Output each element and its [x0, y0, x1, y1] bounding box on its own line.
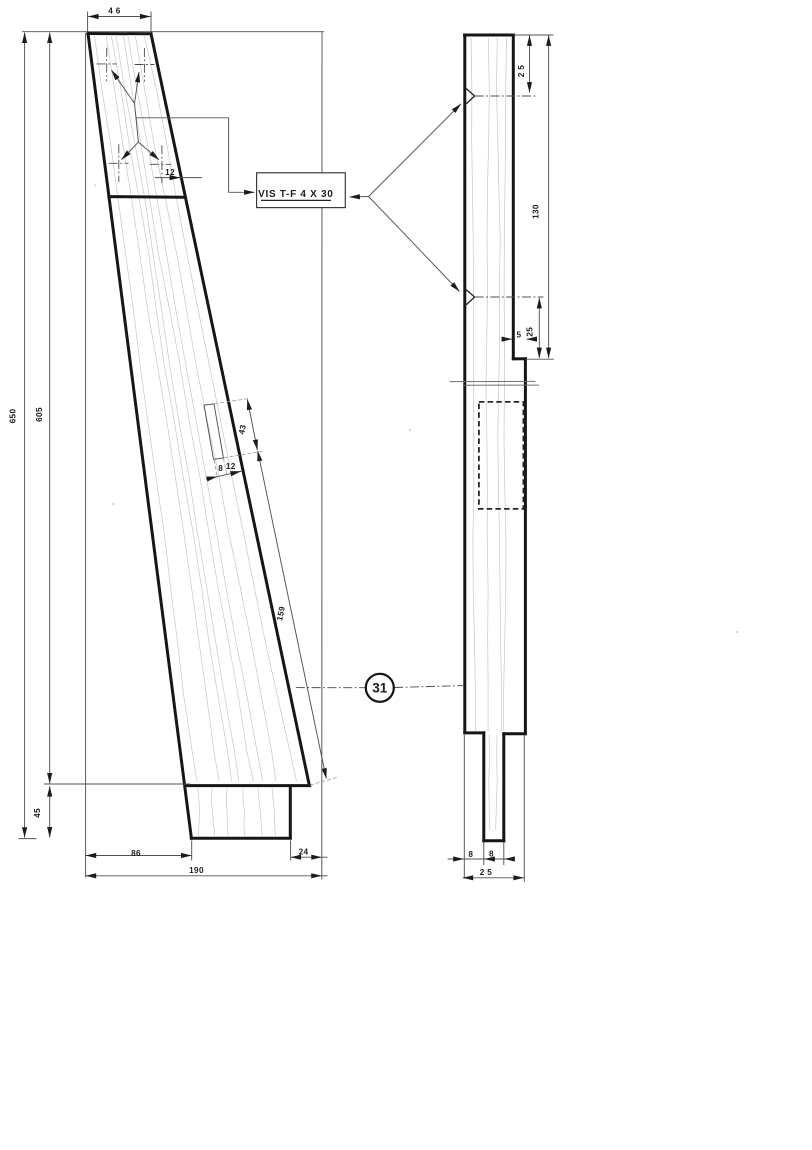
svg-text:12: 12	[165, 168, 175, 177]
svg-text:8: 8	[468, 850, 473, 859]
svg-text:8: 8	[218, 464, 223, 473]
svg-text:31: 31	[372, 681, 388, 696]
svg-text:45: 45	[33, 808, 42, 818]
svg-text:VIS T-F 4 X 30: VIS T-F 4 X 30	[258, 189, 333, 200]
svg-text:24: 24	[299, 848, 309, 857]
svg-text:130: 130	[532, 204, 541, 219]
svg-text:4 6: 4 6	[108, 7, 121, 16]
svg-text:2 5: 2 5	[480, 868, 493, 877]
svg-text:8: 8	[489, 850, 494, 859]
svg-text:25: 25	[526, 327, 535, 337]
svg-text:5: 5	[517, 331, 522, 340]
svg-text:2 5: 2 5	[517, 65, 526, 78]
svg-text:86: 86	[131, 849, 141, 858]
svg-text:605: 605	[35, 407, 44, 422]
svg-text:12: 12	[226, 462, 236, 471]
svg-text:190: 190	[189, 866, 204, 875]
svg-text:650: 650	[9, 409, 18, 424]
